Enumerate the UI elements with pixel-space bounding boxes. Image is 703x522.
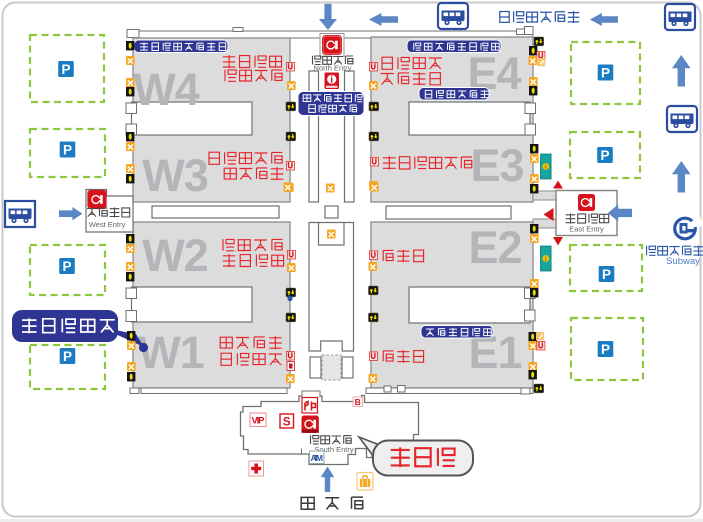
svg-text:ATM: ATM: [310, 453, 323, 463]
svg-text:E2: E2: [468, 222, 521, 273]
svg-text:S: S: [283, 417, 291, 429]
svg-text:West Entry: West Entry: [89, 220, 126, 229]
svg-text:W1: W1: [138, 327, 204, 378]
svg-text:B: B: [355, 397, 361, 407]
svg-text:W2: W2: [142, 230, 208, 281]
svg-text:Subway: Subway: [666, 256, 700, 267]
svg-text:East Entry: East Entry: [569, 225, 604, 234]
svg-text:North Entry: North Entry: [314, 64, 352, 73]
svg-text:W3: W3: [142, 150, 208, 201]
svg-text:W4: W4: [133, 64, 199, 115]
svg-text:i: i: [330, 75, 333, 86]
svg-text:E3: E3: [470, 140, 523, 191]
svg-text:VIP: VIP: [252, 416, 266, 427]
